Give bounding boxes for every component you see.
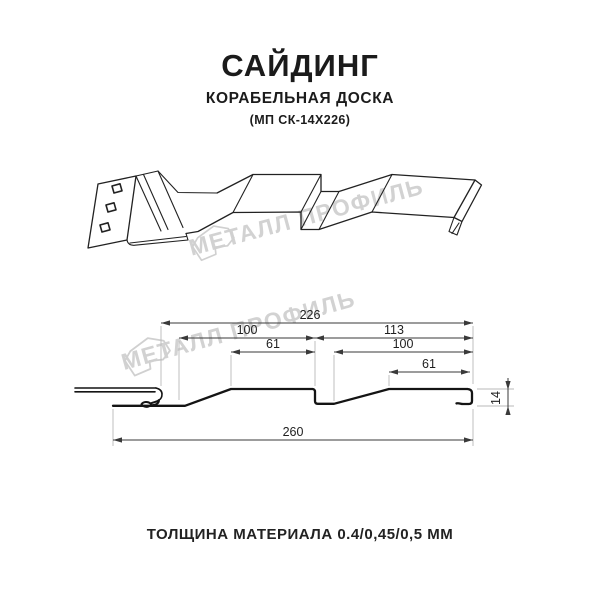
dim-label-113: 113 [384,323,404,337]
extension-lines [113,326,514,446]
nail-strip [88,176,136,248]
product-code: (МП СК-14Х226) [0,113,600,127]
front-profile-edge [186,212,454,234]
dim-label-61-right: 61 [422,357,436,371]
dim-label-61-left: 61 [266,337,280,351]
dim-label-14: 14 [489,391,503,405]
page-title: САЙДИНГ [0,50,600,81]
back-profile-edge [217,175,475,194]
dimension-arrows [113,320,511,442]
dim-label-226: 226 [300,308,321,322]
j-fold-edge [127,171,217,245]
drawing-sheet: САЙДИНГ КОРАБЕЛЬНАЯ ДОСКА (МП СК-14Х226)… [0,0,600,600]
cross-section-drawing: 226 100 113 61 100 61 260 14 [60,308,540,460]
dim-label-100-left: 100 [237,323,258,337]
dim-label-100-right: 100 [393,337,414,351]
profile-3d-drawing [75,150,515,280]
material-thickness-note: ТОЛЩИНА МАТЕРИАЛА 0.4/0,45/0,5 ММ [0,526,600,543]
title-block: САЙДИНГ КОРАБЕЛЬНАЯ ДОСКА (МП СК-14Х226) [0,50,600,127]
dimension-lines [113,323,508,440]
page-subtitle: КОРАБЕЛЬНАЯ ДОСКА [0,90,600,108]
profile-outline [75,388,472,407]
dim-label-260: 260 [283,425,304,439]
right-end-flange [449,180,482,235]
